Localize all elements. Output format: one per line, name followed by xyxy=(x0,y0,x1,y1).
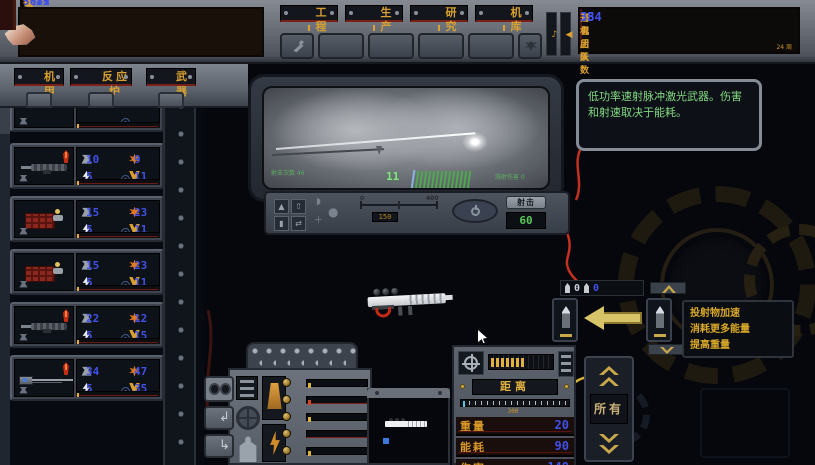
tape-reel-icon xyxy=(204,376,234,402)
upgrade-down-button[interactable] xyxy=(648,344,684,355)
days-since-start-stat: 开机后天数 35 xyxy=(580,9,582,45)
eject-button[interactable]: ⇧ xyxy=(291,199,306,214)
weight-icon xyxy=(19,174,28,182)
accuracy-stats: 射击次数 46 跳弹次数 0 命中次数 46 精度 100% xyxy=(271,156,305,190)
menu-slot-button-4[interactable] xyxy=(468,33,514,59)
upgrade-info-line: 提高重量 xyxy=(690,338,786,354)
knob-pair[interactable] xyxy=(282,395,302,405)
laser-coil xyxy=(375,307,392,318)
menu-slot-button-2[interactable] xyxy=(368,33,414,59)
transfer-all-button[interactable]: 所有 xyxy=(584,356,634,462)
weight-icon xyxy=(19,386,28,394)
energy-icon xyxy=(268,431,282,455)
wrench-button[interactable] xyxy=(280,33,314,59)
weapon-list-item-rocket-pod[interactable]: 15 5 23 11 xyxy=(10,196,164,242)
ammo-counter-bar: 0 0 xyxy=(560,280,644,296)
swap-button[interactable]: ⇄ xyxy=(291,216,306,231)
upgrade-track-4 xyxy=(306,430,368,438)
tab-reactor[interactable]: 反应炉 xyxy=(70,68,132,86)
upgrade-info-panel: 投射物加速 消耗更多能量 提高重量 xyxy=(682,300,794,358)
all-button-label: 所有 xyxy=(590,394,628,424)
machine-gun-sprite xyxy=(21,321,69,333)
target-range-button[interactable] xyxy=(458,351,484,375)
weight-icon xyxy=(19,227,28,235)
laser-beam xyxy=(276,132,476,150)
blob-icon: ● xyxy=(328,205,338,219)
bug-icon xyxy=(524,40,538,52)
bullet-icon xyxy=(565,283,570,293)
undo-button[interactable]: ↲ xyxy=(204,406,234,430)
resource-value: 5631 xyxy=(23,0,50,8)
bullet-icon xyxy=(584,283,589,293)
slider-value: 150 xyxy=(372,212,398,222)
test-screen: 11 射击次数 46 跳弹次数 0 命中次数 46 精度 100% 溅射伤害 0… xyxy=(262,86,550,190)
machine-gun-sprite xyxy=(21,162,69,174)
knob-pair[interactable] xyxy=(282,378,302,388)
corner-note: 24 周 xyxy=(776,42,792,51)
upgrade-up-button[interactable] xyxy=(650,282,686,294)
return-right-icon: ↳ xyxy=(219,436,230,456)
music-toggle[interactable]: ♪ xyxy=(546,12,557,56)
rocket-pod-sprite xyxy=(25,262,65,284)
aim-up-button[interactable]: ▲ xyxy=(274,199,289,214)
weapon-list-item-rocket-pod[interactable]: 15 5 23 11 xyxy=(10,249,164,295)
railgun-sprite xyxy=(19,376,73,386)
crosshair-icon xyxy=(464,356,478,370)
mini-gauges xyxy=(236,376,258,400)
sound-toggle[interactable]: ◀ xyxy=(560,12,571,56)
weapon-preview-screen xyxy=(367,388,450,465)
energy-readout: 60 xyxy=(506,212,546,229)
impact-glow xyxy=(462,132,488,152)
sound-icon: ◀ xyxy=(566,13,573,57)
dial-wheel[interactable] xyxy=(236,406,260,430)
tab-mech[interactable]: 机甲 xyxy=(14,68,64,86)
machine-panel-cap xyxy=(246,342,358,370)
power-icon xyxy=(471,207,480,216)
ammo-slot-current[interactable] xyxy=(552,298,578,342)
tab-weapons[interactable]: 武器 xyxy=(146,68,196,86)
selection-marker xyxy=(383,438,389,444)
weapon-test-monitor: 11 射击次数 46 跳弹次数 0 命中次数 46 精度 100% 溅射伤害 0… xyxy=(248,74,564,202)
sidebar-header: 机甲 反应炉 武器 xyxy=(0,64,248,108)
weapon-list-item-machine-gun[interactable]: 10 5 9 11 xyxy=(10,143,164,189)
menu-slot-button-1[interactable] xyxy=(318,33,364,59)
tab-research[interactable]: 研究 xyxy=(410,5,468,22)
sidebar-rail xyxy=(163,64,196,465)
weapon-list-item-railgun[interactable]: 34 5 47 35 xyxy=(10,355,164,401)
ruler-marker xyxy=(463,401,465,407)
weapon-description-panel: 低功率速射脉冲激光武器。伤害和射速取决于能耗。 xyxy=(576,79,762,151)
upgrade-track-5 xyxy=(306,447,368,455)
weight-icon xyxy=(19,280,28,288)
upgrade-info-line: 投射物加速 xyxy=(690,306,786,322)
distance-header: 距离 xyxy=(472,379,558,395)
team-stats-panel: 工程团队 434 研究团队 28 开机后天数 35 24 周 xyxy=(578,7,800,54)
upgrade-track-3 xyxy=(306,413,368,421)
counter-a: 0 xyxy=(574,283,580,294)
tab-production[interactable]: 生产 xyxy=(345,5,403,22)
plus-icon: ＋ xyxy=(314,213,323,226)
chevron-down-icon xyxy=(660,347,674,354)
tab-hangar[interactable]: 机库 xyxy=(475,5,533,22)
weight-icon xyxy=(19,333,28,341)
wrench-icon xyxy=(291,39,307,53)
test-weapon-silhouette xyxy=(272,148,384,156)
weapon-description-text: 低功率速射脉冲激光武器。伤害和射速取决于能耗。 xyxy=(588,89,750,121)
chevron-down-icon xyxy=(599,434,619,443)
knob-pair[interactable] xyxy=(282,446,302,456)
stat-row-energy: 能耗90 xyxy=(456,438,574,457)
distance-ruler[interactable] xyxy=(460,399,570,407)
test-control-panel: ▲ ⇧ ▮ ⇄ ◗ ＋ ● 0 400 150 射击 60 xyxy=(264,191,570,235)
knob-pair[interactable] xyxy=(282,429,302,439)
transfer-left-arrow[interactable] xyxy=(584,306,642,330)
ammo-slot-upgrade[interactable] xyxy=(646,298,672,342)
menu-slot-button-3[interactable] xyxy=(418,33,464,59)
redo-button[interactable]: ↳ xyxy=(204,434,234,458)
bullet-icon xyxy=(656,306,664,328)
stat-row-weight: 重量20 xyxy=(456,417,574,436)
ammo-type-icon xyxy=(63,362,69,375)
slider-handle[interactable] xyxy=(398,201,400,209)
gauge-stack xyxy=(558,351,574,377)
distance-value: 300 xyxy=(498,408,528,415)
weapon-thumbnail xyxy=(385,418,431,430)
ammo-durability-bar xyxy=(76,232,160,238)
chevron-up-icon xyxy=(599,366,619,375)
beam-button[interactable]: ▮ xyxy=(274,216,289,231)
music-icon: ♪ xyxy=(552,13,558,57)
ammo-segments-bar xyxy=(488,354,554,370)
dps-bar-chart xyxy=(412,170,472,189)
tuning-machine-panel xyxy=(228,368,372,465)
resource-panel: 铁9039 铬7281 铀4273 钨5631 xyxy=(18,7,264,57)
enemy-button[interactable] xyxy=(518,33,542,59)
stat-value: 35 xyxy=(580,10,594,24)
top-bar: 铁9039 铬7281 铀4273 钨5631 工程 生产 研究 机库 xyxy=(0,0,815,64)
knob-pair[interactable] xyxy=(282,412,302,422)
weight-icon xyxy=(19,117,28,125)
game-screen: 铁9039 铬7281 铀4273 钨5631 工程 生产 研究 机库 xyxy=(0,0,815,465)
fire-button[interactable]: 射击 xyxy=(506,196,546,209)
chevron-up-icon xyxy=(662,285,676,293)
equipped-weapon-sprite[interactable] xyxy=(367,284,455,328)
tab-engineering[interactable]: 工程 xyxy=(280,5,338,22)
shot-counter: 11 xyxy=(386,170,399,183)
ammo-durability-bar xyxy=(76,338,160,344)
return-left-icon: ↲ xyxy=(219,408,230,428)
ammo-durability-bar xyxy=(76,122,160,128)
upgrade-track-1 xyxy=(306,379,368,387)
upgrade-track-2 xyxy=(306,396,368,404)
corner-frame-decoration xyxy=(0,0,16,30)
upgrade-info-line: 消耗更多能量 xyxy=(690,322,786,338)
ammo-durability-bar xyxy=(76,285,160,291)
weapon-stats-panel: 距离 300 重量20 能耗90 伤害148 穿甲0 xyxy=(452,345,576,465)
arrow-left-icon xyxy=(584,306,604,330)
left-rail xyxy=(0,64,10,465)
chevron-up-icon xyxy=(599,377,619,386)
moon-icon: ◗ xyxy=(316,197,321,207)
rocket-pod-sprite xyxy=(25,209,65,231)
barrel-icon xyxy=(266,383,283,409)
weapon-list-item-machine-gun[interactable]: 22 5 12 15 xyxy=(10,302,164,348)
ammo-durability-bar xyxy=(76,391,160,397)
counter-b: 0 xyxy=(593,283,599,294)
power-button[interactable] xyxy=(452,199,498,223)
stat-row-damage: 伤害148 xyxy=(456,459,574,465)
damage-stats: 溅射伤害 0 预期伤害 6000 每秒伤害 60.00 xyxy=(495,160,538,190)
bullet-icon xyxy=(562,306,570,328)
ammo-durability-bar xyxy=(76,179,160,185)
chevron-down-icon xyxy=(599,445,619,454)
pilot-icon xyxy=(238,436,258,462)
